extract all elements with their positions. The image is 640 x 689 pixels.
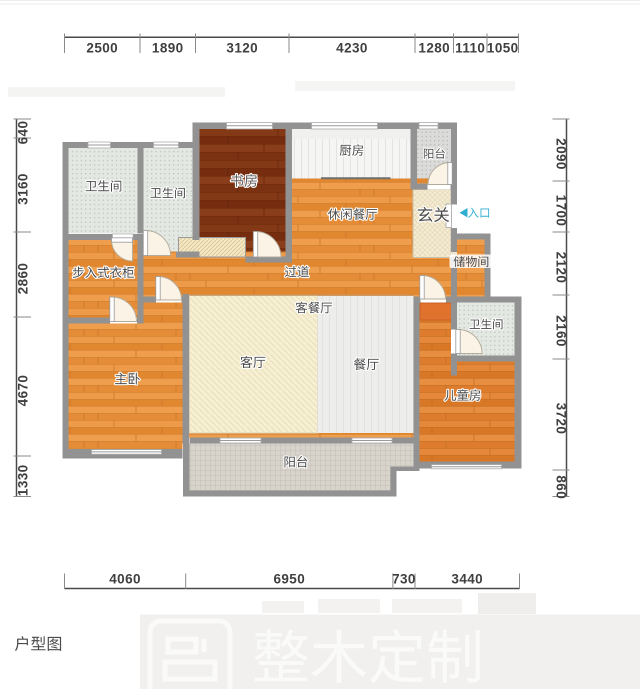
svg-text:4670: 4670 — [16, 375, 31, 407]
svg-text:730: 730 — [392, 572, 416, 587]
svg-text:860: 860 — [554, 475, 569, 499]
svg-text:2860: 2860 — [16, 263, 31, 295]
svg-text:1890: 1890 — [152, 41, 184, 56]
svg-text:2120: 2120 — [554, 252, 569, 284]
svg-text:1050: 1050 — [487, 41, 519, 56]
svg-text:2500: 2500 — [86, 41, 118, 56]
svg-text:3120: 3120 — [226, 41, 258, 56]
svg-text:4230: 4230 — [336, 41, 368, 56]
svg-text:2090: 2090 — [554, 138, 569, 170]
svg-text:1700: 1700 — [554, 195, 569, 227]
svg-text:1330: 1330 — [16, 464, 31, 496]
svg-text:1110: 1110 — [455, 41, 485, 56]
svg-text:4060: 4060 — [109, 572, 141, 587]
svg-text:3440: 3440 — [451, 572, 483, 587]
svg-text:3720: 3720 — [554, 403, 569, 435]
svg-text:1280: 1280 — [418, 41, 450, 56]
svg-text:640: 640 — [16, 121, 31, 145]
svg-text:3160: 3160 — [16, 173, 31, 205]
svg-text:6950: 6950 — [273, 572, 305, 587]
svg-text:2160: 2160 — [554, 315, 569, 347]
